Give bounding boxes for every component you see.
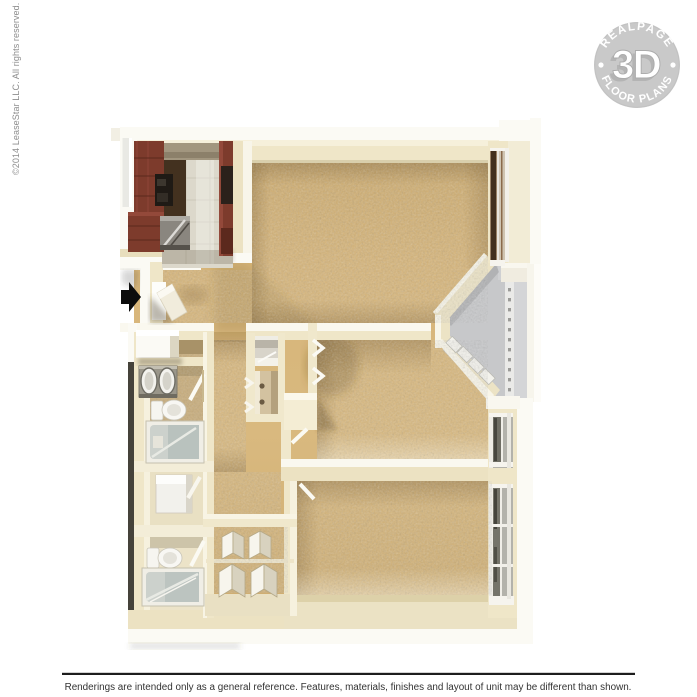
svg-text:Renderings are intended only a: Renderings are intended only as a genera… xyxy=(65,682,632,693)
svg-text:3D: 3D xyxy=(612,43,661,87)
svg-text:©2014 LeaseStar LLC. All right: ©2014 LeaseStar LLC. All rights reserved… xyxy=(11,3,21,175)
